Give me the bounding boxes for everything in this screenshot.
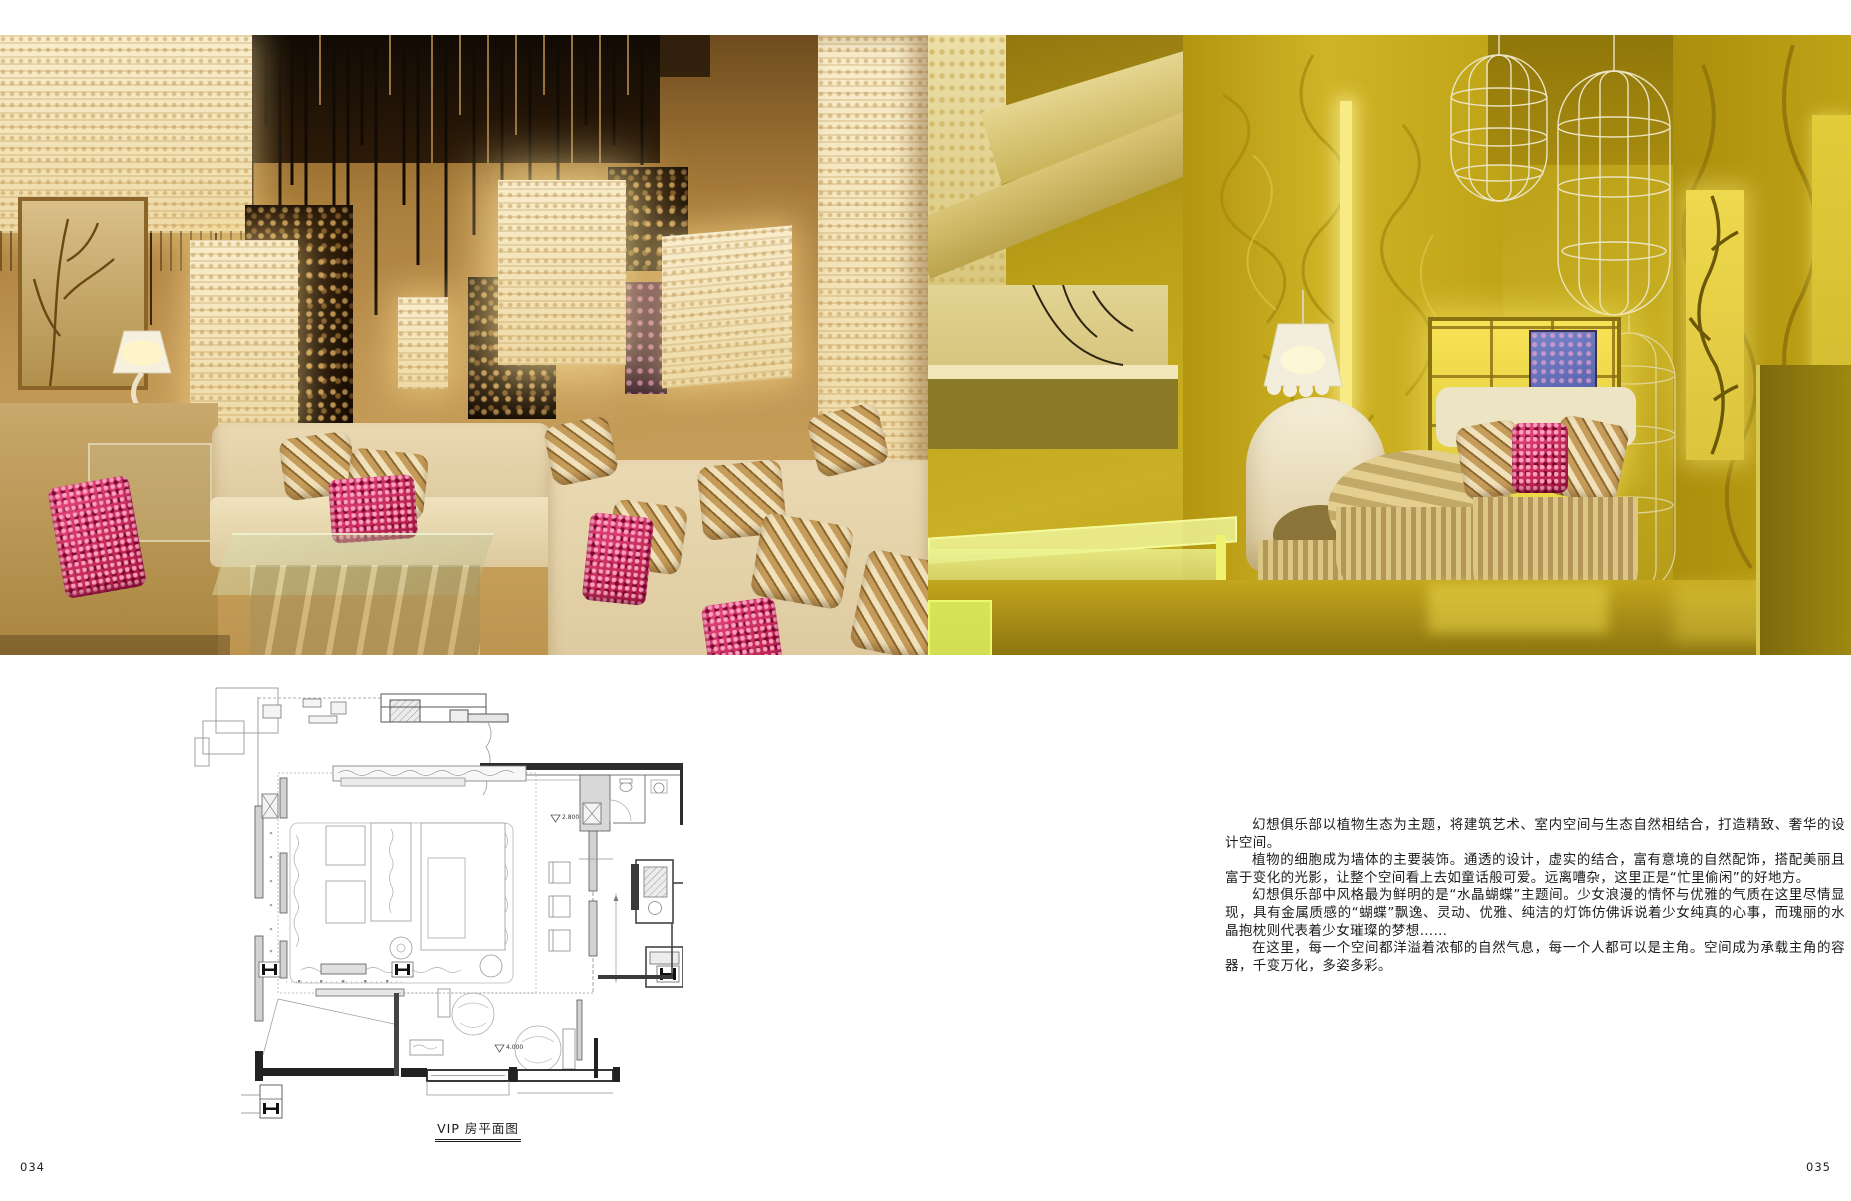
lantern-tassel (150, 233, 152, 325)
level-mark-2: 4.000 (506, 1044, 523, 1051)
floor-reflection (1428, 583, 1608, 633)
sequin-pillow (1512, 423, 1568, 493)
floor-plan-caption: VIP 房平面图 (378, 1118, 578, 1137)
sequin-pillow (582, 512, 655, 606)
glossy-wall-panel (1756, 365, 1851, 655)
cube-lantern-center (498, 180, 626, 365)
floor-plan-drawing: 2.800 (183, 683, 683, 1148)
floor-plan-caption-text: VIP 房平面图 (435, 1121, 521, 1142)
article-paragraph: 幻想俱乐部以植物生态为主题，将建筑艺术、室内空间与生态自然相结合，打造精致、奢华… (1225, 817, 1845, 852)
lamp-wires (1023, 285, 1143, 395)
article-paragraph: 幻想俱乐部中风格最为鲜明的是“水晶蝴蝶”主题间。少女浪漫的情怀与优雅的气质在这里… (1225, 887, 1845, 940)
cube-lantern-right (662, 225, 792, 388)
article-paragraph: 植物的细胞成为墙体的主要装饰。通透的设计，虚实的结合，富有意境的自然配饰，搭配美… (1225, 852, 1845, 887)
cube-lantern-small (398, 297, 448, 389)
article-text: 幻想俱乐部以植物生态为主题，将建筑艺术、室内空间与生态自然相结合，打造精致、奢华… (1225, 817, 1845, 975)
article-paragraph: 在这里，每一个空间都洋溢着浓郁的自然气息，每一个人都可以是主角。空间成为承载主角… (1225, 940, 1845, 975)
floor-shadow (0, 635, 230, 655)
cube-lantern-left (190, 240, 298, 430)
sequin-pillow (701, 596, 786, 655)
floral-panel-purple (625, 282, 667, 394)
book-spread: 2.800 (0, 0, 1851, 1201)
photo-right-lobby (928, 35, 1851, 655)
striped-pillow (749, 512, 854, 611)
glass-table-body (250, 565, 480, 655)
level-mark-1: 2.800 (562, 814, 579, 821)
photo-left-lounge (0, 35, 928, 655)
page-number-right: 035 (1806, 1160, 1831, 1174)
glass-cube (928, 600, 992, 655)
page-number-left: 034 (20, 1160, 45, 1174)
